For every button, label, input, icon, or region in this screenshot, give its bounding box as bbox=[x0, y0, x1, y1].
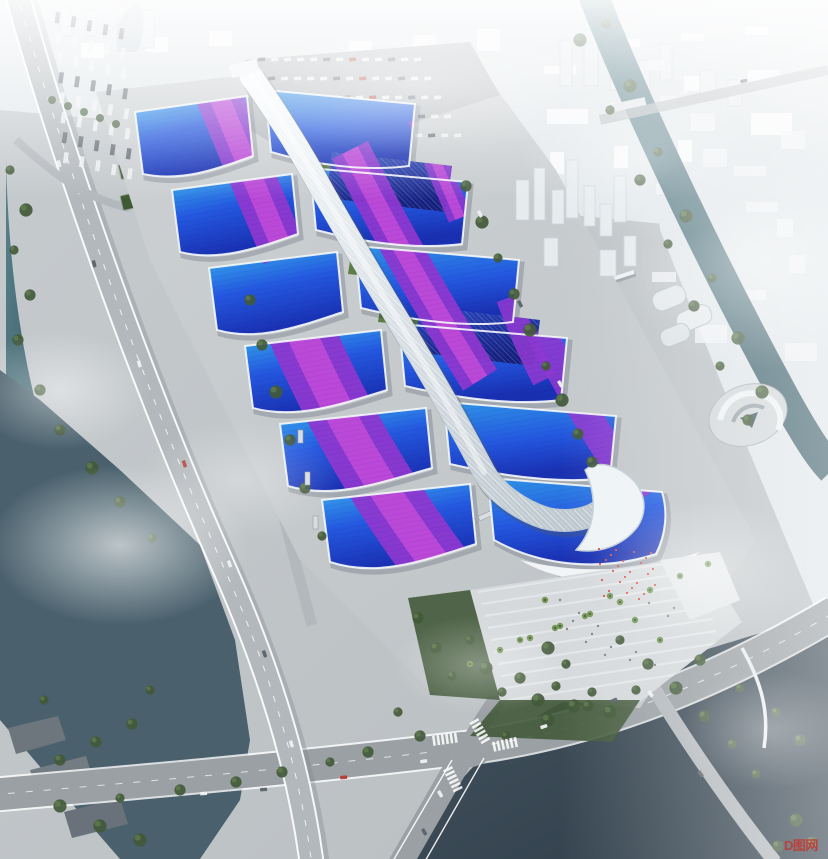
tree bbox=[24, 289, 35, 300]
tree-highlight bbox=[135, 835, 141, 841]
mist-patch bbox=[140, 420, 340, 540]
tree bbox=[53, 799, 66, 812]
tree bbox=[317, 531, 326, 540]
tree bbox=[93, 819, 106, 832]
city-tower bbox=[544, 238, 558, 266]
tree bbox=[276, 766, 287, 777]
tree-highlight bbox=[318, 532, 322, 536]
tree bbox=[362, 746, 373, 757]
tree bbox=[54, 754, 65, 765]
tree-highlight bbox=[502, 732, 506, 736]
tree-highlight bbox=[10, 246, 14, 250]
tree-highlight bbox=[394, 708, 398, 712]
car bbox=[200, 792, 207, 796]
tree bbox=[393, 707, 402, 716]
mist-patch bbox=[520, 80, 760, 240]
exhibition-center-aerial-rendering: D图网 bbox=[0, 0, 828, 859]
tree-highlight bbox=[525, 325, 531, 331]
tree-highlight bbox=[21, 205, 27, 211]
tree bbox=[145, 685, 154, 694]
tree-highlight bbox=[176, 786, 181, 791]
tree-highlight bbox=[414, 614, 419, 619]
tree-highlight bbox=[510, 290, 515, 295]
tree-highlight bbox=[494, 254, 498, 258]
tree bbox=[412, 612, 423, 623]
tree-highlight bbox=[128, 720, 133, 725]
tree bbox=[325, 757, 334, 766]
tree bbox=[256, 339, 267, 350]
tree-highlight bbox=[477, 217, 483, 223]
car bbox=[260, 788, 267, 792]
tree bbox=[475, 215, 488, 228]
tree-highlight bbox=[542, 362, 546, 366]
tree bbox=[230, 776, 241, 787]
tree bbox=[90, 736, 101, 747]
tree bbox=[244, 294, 255, 305]
tree-highlight bbox=[416, 732, 421, 737]
tree-highlight bbox=[271, 387, 277, 393]
tree-highlight bbox=[232, 778, 237, 783]
tree-highlight bbox=[92, 738, 97, 743]
tree-highlight bbox=[246, 296, 251, 301]
tree-highlight bbox=[543, 715, 549, 721]
tree-highlight bbox=[116, 794, 120, 798]
tree bbox=[19, 203, 32, 216]
palm-trunk bbox=[554, 627, 556, 629]
tree bbox=[9, 245, 18, 254]
aerial-rendering-stage: D图网 bbox=[0, 0, 828, 859]
tree-highlight bbox=[95, 821, 101, 827]
tree-highlight bbox=[278, 768, 283, 773]
tree bbox=[414, 730, 425, 741]
tree bbox=[269, 385, 282, 398]
tree bbox=[493, 253, 502, 262]
tree bbox=[508, 288, 519, 299]
tree bbox=[126, 718, 137, 729]
tree-highlight bbox=[258, 341, 263, 346]
tree-highlight bbox=[55, 801, 61, 807]
mist-patch bbox=[590, 500, 810, 640]
tree-highlight bbox=[40, 696, 44, 700]
tree bbox=[523, 323, 536, 336]
tree-highlight bbox=[364, 748, 369, 753]
palm-trunk bbox=[544, 599, 546, 601]
tree bbox=[133, 833, 146, 846]
tree bbox=[39, 695, 48, 704]
tree bbox=[174, 784, 185, 795]
mist-patch bbox=[390, 615, 570, 715]
tree-highlight bbox=[56, 756, 61, 761]
tree bbox=[541, 713, 554, 726]
tree-highlight bbox=[326, 758, 330, 762]
tree bbox=[541, 361, 550, 370]
watermark: D图网 bbox=[784, 838, 818, 853]
tree bbox=[115, 793, 124, 802]
tree-highlight bbox=[26, 291, 31, 296]
tree-highlight bbox=[146, 686, 150, 690]
car bbox=[340, 775, 347, 779]
